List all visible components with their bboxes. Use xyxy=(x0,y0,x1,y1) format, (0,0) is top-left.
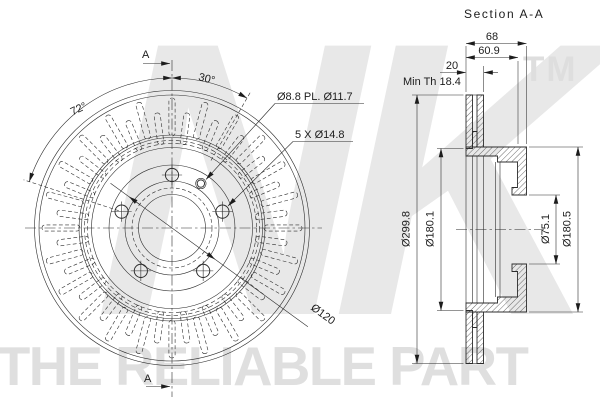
dim-outer-diameter: Ø299.8 xyxy=(401,95,418,364)
vent-slot xyxy=(255,236,288,246)
vent-slot xyxy=(260,191,298,207)
vent-slot xyxy=(57,210,90,220)
vent-slot xyxy=(154,113,164,146)
drawing-canvas: 30° 72° Ø120 Ø8.8 PL. Ø11.7 xyxy=(0,0,600,400)
section-extension-lines xyxy=(412,46,583,364)
vent-slot xyxy=(78,134,109,165)
vent-slot xyxy=(57,236,90,246)
angle-30-label: 30° xyxy=(197,71,216,87)
vent-slot xyxy=(99,293,123,322)
section-cut-marker-bottom: A xyxy=(144,373,170,387)
vent-slot xyxy=(221,293,245,322)
section-view-drawing: Section A-A xyxy=(401,7,584,364)
front-view-drawing: 30° 72° Ø120 Ø8.8 PL. Ø11.7 xyxy=(24,49,364,397)
angle-72-label: 72° xyxy=(69,100,89,118)
vent-slot xyxy=(237,155,266,179)
dim-band-inner-diameter: Ø180.1 xyxy=(425,149,442,311)
vent-slot xyxy=(180,113,190,146)
vent-slot xyxy=(78,291,109,322)
disc-thickness-label: 20 xyxy=(446,60,458,72)
bolt-hole-label: 5 X Ø14.8 xyxy=(295,129,345,141)
vent-slot xyxy=(193,102,209,140)
section-cut-marker-top: A xyxy=(142,49,170,64)
dim-center-bore: Ø75.1 xyxy=(540,195,556,264)
pilot-hole xyxy=(197,180,204,187)
vent-slot xyxy=(193,316,209,354)
vent-slot xyxy=(154,311,164,344)
brake-disc-technical-drawing: NK TM THE RELIABLE PART 30° xyxy=(0,0,600,400)
min-thickness-note: Min Th 18.4 xyxy=(403,76,461,88)
vent-slot xyxy=(46,249,84,265)
section-marker-top-label: A xyxy=(142,49,150,61)
vent-slot xyxy=(237,277,266,301)
vent-slot xyxy=(135,316,151,354)
center-bore-label: Ø75.1 xyxy=(540,214,552,244)
outer-diameter-label: Ø299.8 xyxy=(401,211,413,247)
vent-slot xyxy=(250,271,286,295)
vent-slot xyxy=(78,277,107,301)
vent-slot xyxy=(78,155,107,179)
vent-slot xyxy=(104,114,128,150)
vent-slot xyxy=(260,249,298,265)
hat-depth-label: 60.9 xyxy=(478,45,499,57)
section-title: Section A-A xyxy=(464,7,544,21)
vent-slot xyxy=(46,191,84,207)
vent-slot xyxy=(180,311,190,344)
angle-dimension-72: 72° xyxy=(24,78,172,211)
vent-slot xyxy=(235,134,266,165)
pilot-hole-label: Ø8.8 PL. Ø11.7 xyxy=(277,91,353,103)
vent-slot xyxy=(201,120,219,152)
vent-slot xyxy=(255,210,288,220)
dim-disc-thickness: 20 xyxy=(440,60,498,73)
vent-slot xyxy=(58,160,94,184)
dim-overall-width: 68 xyxy=(466,31,527,44)
band-inner-diameter-label: Ø180.1 xyxy=(425,211,437,247)
vent-slot xyxy=(135,102,151,140)
vent-slot xyxy=(58,271,94,295)
dim-hat-depth: 60.9 xyxy=(466,45,518,58)
vent-slot xyxy=(104,306,128,342)
vent-slot xyxy=(215,306,239,342)
bolt-circle-label: Ø120 xyxy=(308,302,337,328)
vent-slot xyxy=(235,291,266,322)
section-profile xyxy=(456,95,544,364)
hat-outer-diameter-label: Ø180.5 xyxy=(562,211,574,247)
vent-slot xyxy=(250,160,286,184)
section-marker-bottom-label: A xyxy=(144,373,152,385)
dim-hat-outer-diameter: Ø180.5 xyxy=(562,147,579,312)
vent-slot xyxy=(99,134,123,163)
overall-width-label: 68 xyxy=(486,31,498,43)
